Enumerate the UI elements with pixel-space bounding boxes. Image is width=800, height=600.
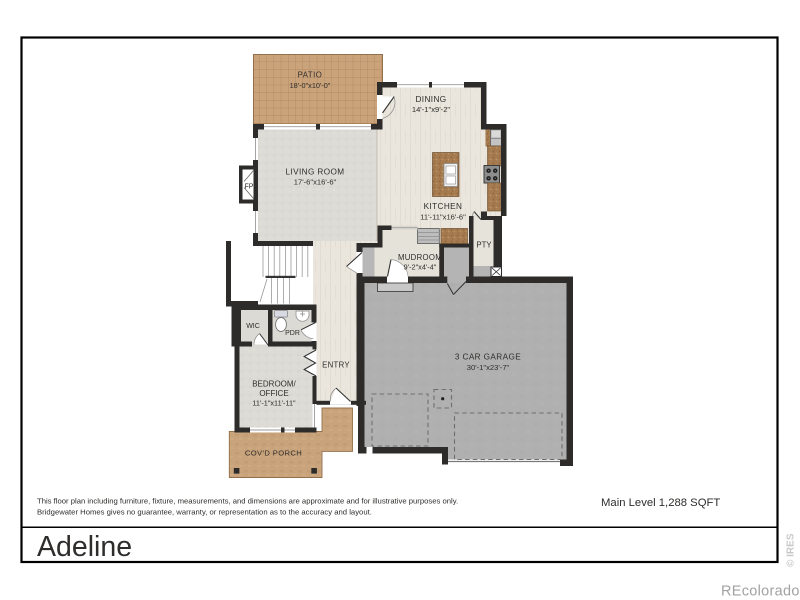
svg-text:17'-6"x16'-6": 17'-6"x16'-6": [294, 178, 337, 187]
svg-text:18'-0"x10'-0": 18'-0"x10'-0": [290, 81, 331, 90]
svg-text:30'-1"x23'-7": 30'-1"x23'-7": [467, 363, 510, 372]
svg-text:WIC: WIC: [246, 323, 260, 330]
svg-text:Adeline: Adeline: [37, 531, 132, 563]
svg-text:ENTRY: ENTRY: [322, 361, 350, 370]
svg-text:© IRES: © IRES: [786, 533, 797, 567]
svg-text:LIVING ROOM: LIVING ROOM: [286, 168, 345, 177]
svg-text:BEDROOM/: BEDROOM/: [252, 380, 296, 389]
svg-text:3 CAR GARAGE: 3 CAR GARAGE: [455, 353, 521, 362]
svg-text:PATIO: PATIO: [298, 71, 323, 80]
svg-text:COV'D PORCH: COV'D PORCH: [245, 449, 302, 458]
svg-text:11'-1"x11'-11": 11'-1"x11'-11": [252, 399, 296, 408]
svg-text:KITCHEN: KITCHEN: [424, 202, 463, 211]
svg-text:PTY: PTY: [476, 241, 492, 250]
svg-text:REcolorado: REcolorado: [721, 584, 800, 600]
svg-text:This floor plan including furn: This floor plan including furniture, fix…: [37, 497, 458, 506]
svg-text:14'-1"x9'-2": 14'-1"x9'-2": [412, 105, 451, 114]
svg-text:MUDROOM: MUDROOM: [398, 253, 442, 262]
svg-text:FP: FP: [245, 184, 254, 191]
svg-text:OFFICE: OFFICE: [259, 389, 288, 398]
svg-text:PDR: PDR: [285, 330, 300, 337]
svg-text:DINING: DINING: [415, 95, 446, 104]
svg-text:9'-2"x4'-4": 9'-2"x4'-4": [404, 263, 437, 272]
svg-text:Main Level 1,288 SQFT: Main Level 1,288 SQFT: [601, 497, 720, 509]
svg-text:Bridgewater Homes gives no gua: Bridgewater Homes gives no guarantee, wa…: [37, 507, 372, 516]
svg-text:11'-11"x16'-6": 11'-11"x16'-6": [420, 213, 466, 222]
